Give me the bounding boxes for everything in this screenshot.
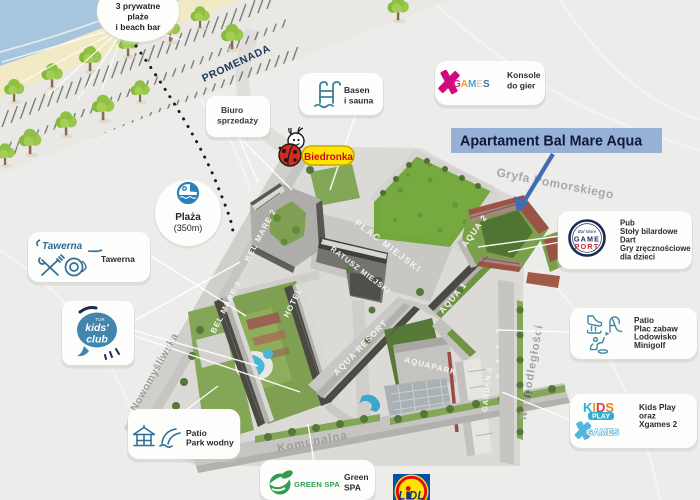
svg-text:club: club xyxy=(86,334,108,346)
svg-text:SPA: SPA xyxy=(344,483,361,493)
svg-text:GREEN SPA: GREEN SPA xyxy=(294,480,340,489)
svg-text:Green: Green xyxy=(344,472,369,482)
svg-text:i sauna: i sauna xyxy=(344,96,374,106)
svg-text:PLAY: PLAY xyxy=(592,414,610,421)
svg-text:Biedronka: Biedronka xyxy=(304,152,353,163)
svg-text:i beach bar: i beach bar xyxy=(116,22,162,32)
svg-text:GAMES: GAMES xyxy=(453,79,490,90)
svg-text:kids': kids' xyxy=(85,322,109,334)
svg-text:3 prywatne: 3 prywatne xyxy=(116,1,161,11)
svg-text:dla dzieci: dla dzieci xyxy=(620,253,655,262)
svg-text:Patio: Patio xyxy=(186,428,207,438)
svg-text:Park wodny: Park wodny xyxy=(186,438,234,448)
svg-text:Apartament Bal Mare Aqua: Apartament Bal Mare Aqua xyxy=(460,134,643,150)
svg-text:Konsole: Konsole xyxy=(507,70,541,80)
svg-text:Xgames 2: Xgames 2 xyxy=(639,420,678,429)
svg-text:sprzedaży: sprzedaży xyxy=(217,116,258,126)
svg-text:PORT: PORT xyxy=(575,242,600,251)
svg-text:GAMES: GAMES xyxy=(586,427,620,437)
svg-text:(350m): (350m) xyxy=(174,223,203,233)
svg-text:Minigolf: Minigolf xyxy=(634,341,666,350)
svg-text:do gier: do gier xyxy=(507,81,536,91)
svg-text:Bal Mare: Bal Mare xyxy=(578,229,597,234)
svg-text:Plaża: Plaża xyxy=(175,212,201,223)
svg-text:Basen: Basen xyxy=(344,85,370,95)
svg-text:Tawerna: Tawerna xyxy=(101,254,135,264)
svg-text:plaże: plaże xyxy=(127,12,149,22)
svg-text:Tawerna: Tawerna xyxy=(42,241,83,252)
svg-text:Biuro: Biuro xyxy=(221,105,243,115)
svg-text:L DL: L DL xyxy=(398,491,424,500)
